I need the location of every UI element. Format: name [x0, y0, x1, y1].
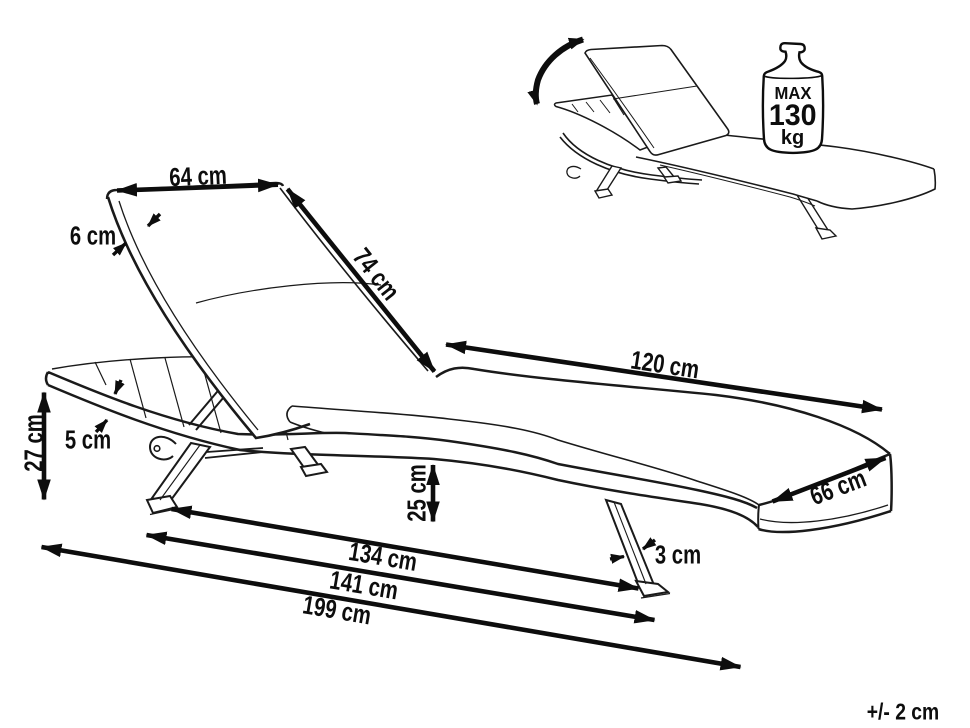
- svg-text:25 cm: 25 cm: [402, 464, 431, 521]
- svg-text:3 cm: 3 cm: [655, 540, 701, 569]
- svg-text:27 cm: 27 cm: [19, 414, 48, 471]
- svg-text:5 cm: 5 cm: [65, 425, 111, 454]
- svg-text:+/- 2 cm: +/- 2 cm: [867, 700, 939, 725]
- svg-text:64 cm: 64 cm: [169, 160, 228, 191]
- svg-text:kg: kg: [781, 127, 804, 149]
- svg-text:6 cm: 6 cm: [70, 221, 116, 250]
